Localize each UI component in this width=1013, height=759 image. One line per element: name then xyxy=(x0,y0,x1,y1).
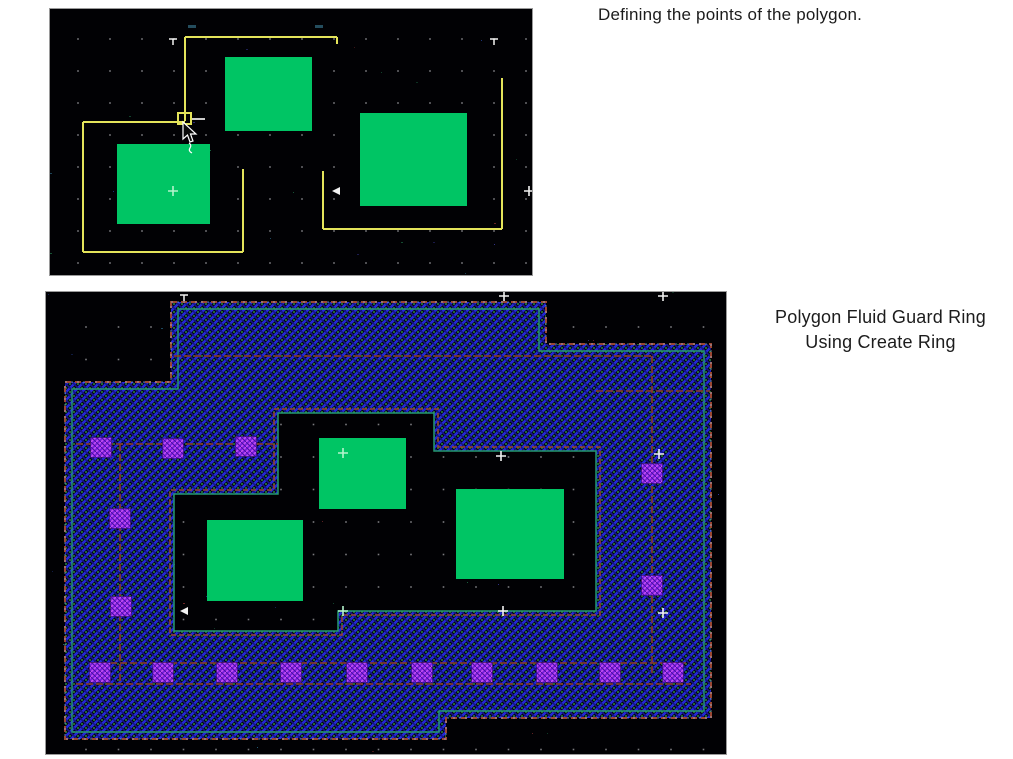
caption-guard-ring-line1: Polygon Fluid Guard Ring xyxy=(758,305,1003,330)
contact-via[interactable] xyxy=(236,437,257,457)
contact-via[interactable] xyxy=(412,663,433,683)
polygon-drawing-svg[interactable] xyxy=(50,9,532,275)
caption-defining-points: Defining the points of the polygon. xyxy=(598,5,862,25)
green-rect-shape[interactable] xyxy=(117,144,210,224)
contact-via[interactable] xyxy=(163,439,184,459)
green-rect-shape[interactable] xyxy=(207,520,303,601)
caption-guard-ring: Polygon Fluid Guard Ring Using Create Ri… xyxy=(758,305,1003,355)
green-rect-shape[interactable] xyxy=(225,57,312,131)
ruler-smudge xyxy=(315,25,323,28)
contact-via[interactable] xyxy=(217,663,238,683)
ruler-smudge xyxy=(188,25,196,28)
guard-ring-svg[interactable] xyxy=(46,292,726,754)
contact-via[interactable] xyxy=(91,438,112,458)
contact-via[interactable] xyxy=(281,663,302,683)
contact-via[interactable] xyxy=(90,663,111,683)
contact-via[interactable] xyxy=(347,663,368,683)
contact-via[interactable] xyxy=(663,663,684,683)
figure-page: Defining the points of the polygon. Poly… xyxy=(0,0,1013,759)
green-rect-shape[interactable] xyxy=(360,113,467,206)
contact-via[interactable] xyxy=(110,509,131,529)
green-rect-shape[interactable] xyxy=(456,489,564,579)
contact-via[interactable] xyxy=(600,663,621,683)
green-rect-shape[interactable] xyxy=(319,438,406,509)
contact-via[interactable] xyxy=(642,464,663,484)
contact-via[interactable] xyxy=(472,663,493,683)
contact-via[interactable] xyxy=(153,663,174,683)
guard-ring-canvas[interactable] xyxy=(45,291,727,755)
contact-via[interactable] xyxy=(111,597,132,617)
caption-guard-ring-line2: Using Create Ring xyxy=(758,330,1003,355)
polygon-drawing-canvas[interactable] xyxy=(49,8,533,276)
contact-via[interactable] xyxy=(537,663,558,683)
contact-via[interactable] xyxy=(642,576,663,596)
